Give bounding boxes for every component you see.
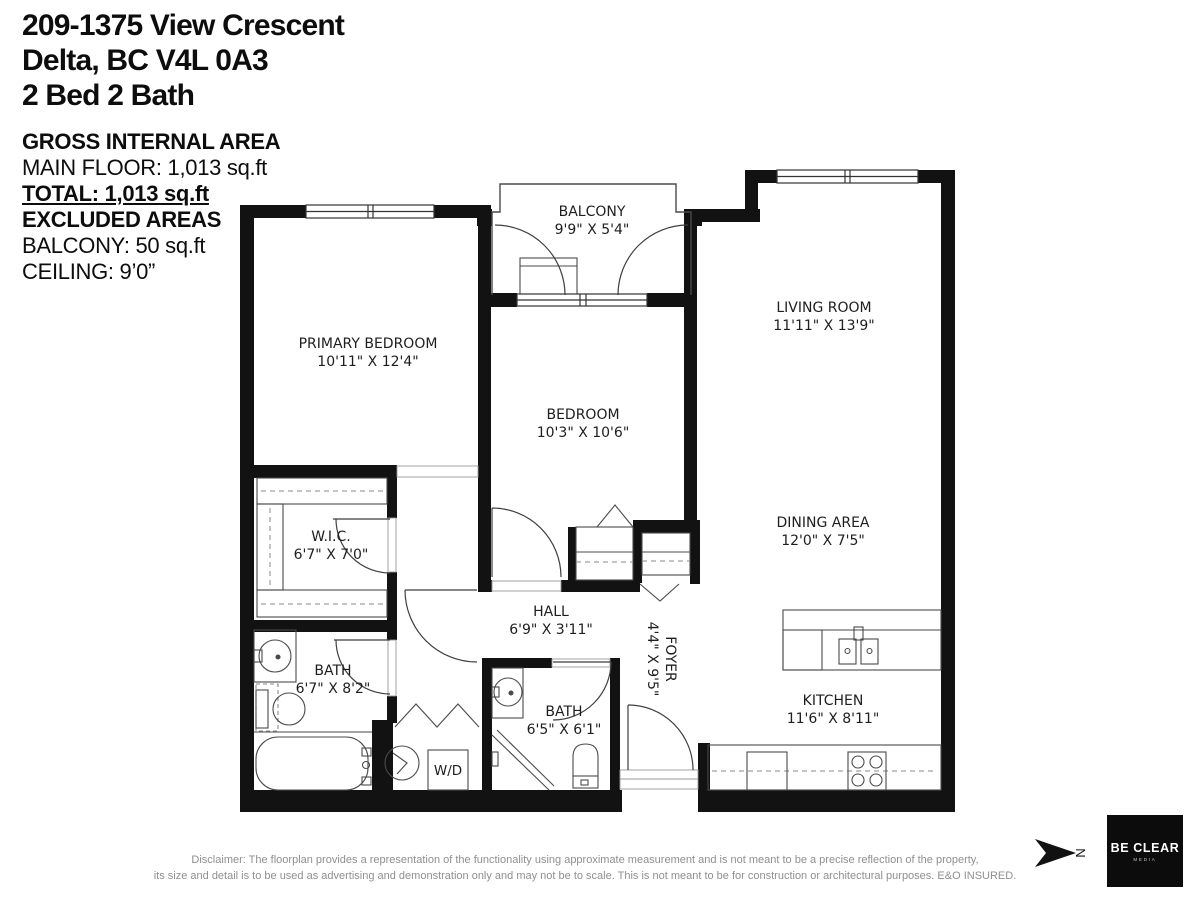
room-label-wic: W.I.C.6'7" X 7'0"	[294, 528, 369, 564]
disclaimer-line-2: its size and detail is to be used as adv…	[85, 868, 1085, 884]
washer-dryer-label: W/D	[434, 763, 462, 779]
balcony-sliding-doors	[517, 294, 647, 306]
closet-fittings	[257, 478, 690, 790]
balcony-structure	[492, 184, 691, 296]
room-label-bedroom: BEDROOM10'3" X 10'6"	[537, 406, 630, 442]
room-label-foyer: FOYER4'4" X 9'5"	[643, 622, 679, 697]
bath1-fixtures	[254, 630, 372, 790]
excluded-areas-heading: EXCLUDED AREAS	[22, 207, 280, 233]
disclaimer-line-1: Disclaimer: The floorplan provides a rep…	[85, 852, 1085, 868]
room-label-hall: HALL6'9" X 3'11"	[509, 603, 593, 639]
room-label-primary-bedroom: PRIMARY BEDROOM10'11" X 12'4"	[299, 335, 438, 371]
gross-area-heading: GROSS INTERNAL AREA	[22, 129, 280, 155]
room-label-living-room: LIVING ROOM11'11" X 13'9"	[773, 299, 874, 335]
north-label: N	[1072, 845, 1088, 861]
logo-name: BE CLEAR	[1107, 841, 1183, 855]
room-label-balcony: BALCONY9'9" X 5'4"	[555, 203, 630, 239]
room-label-bath-2: BATH6'5" X 6'1"	[527, 703, 602, 739]
logo-subtitle: MEDIA	[1107, 857, 1183, 862]
total-area: TOTAL: 1,013 sq.ft	[22, 181, 280, 207]
disclaimer: Disclaimer: The floorplan provides a rep…	[85, 852, 1085, 884]
ceiling-height: CEILING: 9’0”	[22, 259, 280, 285]
area-summary: GROSS INTERNAL AREA MAIN FLOOR: 1,013 sq…	[22, 129, 280, 285]
bed-bath-line: 2 Bed 2 Bath	[22, 78, 344, 113]
balcony-area: BALCONY: 50 sq.ft	[22, 233, 280, 259]
room-label-dining-area: DINING AREA12'0" X 7'5"	[776, 514, 869, 550]
floorplan-page: 209-1375 View Crescent Delta, BC V4L 0A3…	[0, 0, 1200, 900]
address-line-2: Delta, BC V4L 0A3	[22, 43, 344, 78]
main-floor-area: MAIN FLOOR: 1,013 sq.ft	[22, 155, 280, 181]
room-label-kitchen: KITCHEN11'6" X 8'11"	[787, 692, 880, 728]
address-line-1: 209-1375 View Crescent	[22, 8, 344, 43]
room-label-bath-1: BATH6'7" X 8'2"	[296, 662, 371, 698]
property-title: 209-1375 View Crescent Delta, BC V4L 0A3…	[22, 8, 344, 113]
be-clear-media-logo: BE CLEAR MEDIA	[1107, 815, 1183, 887]
